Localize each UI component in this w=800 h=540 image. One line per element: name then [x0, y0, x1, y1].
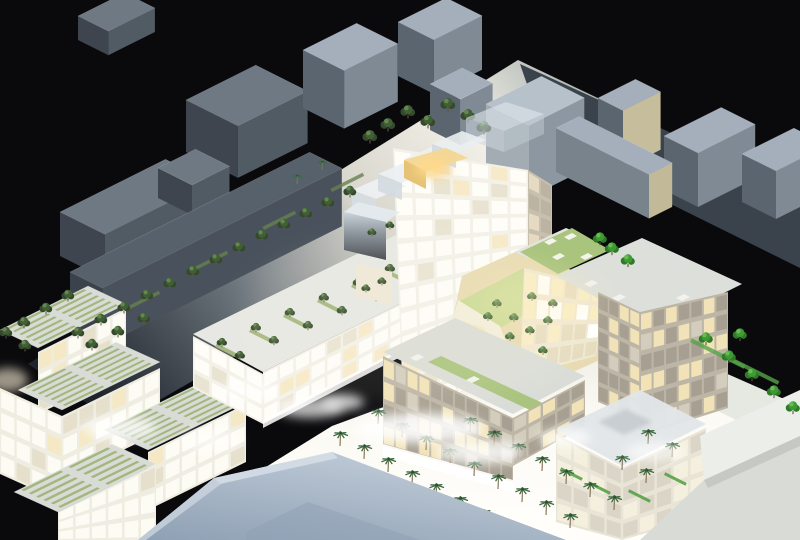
window-cell	[666, 346, 677, 364]
window-cell	[491, 184, 507, 198]
street-light-glow	[625, 442, 685, 462]
tree-highlight	[213, 254, 217, 258]
window-cell	[454, 200, 470, 215]
tree-highlight	[167, 278, 171, 282]
window-cell	[716, 333, 727, 351]
palm-crown	[565, 470, 568, 473]
palm-crown	[613, 496, 616, 499]
tree-highlight	[75, 327, 79, 331]
tree-highlight	[43, 303, 47, 307]
street-light-glow	[320, 394, 364, 410]
window-cell	[491, 166, 507, 181]
palm-crown	[497, 475, 500, 478]
window-cell	[435, 219, 451, 235]
street-light-glow	[436, 440, 524, 464]
tree-highlight	[370, 229, 373, 232]
tree-highlight	[702, 333, 706, 337]
palm-crown	[363, 445, 366, 448]
tree-highlight	[347, 186, 351, 190]
tree-highlight	[259, 230, 263, 234]
tree-highlight	[98, 314, 102, 318]
window-cell	[472, 163, 488, 179]
courtyard-glow	[480, 272, 600, 328]
palm-crown	[321, 161, 323, 163]
tree-highlight	[770, 386, 774, 390]
window-cell	[453, 180, 469, 196]
tree-highlight	[22, 340, 26, 344]
tree-highlight	[65, 290, 69, 294]
tree-highlight	[303, 208, 307, 212]
street-light-glow	[180, 430, 240, 450]
window-cell	[510, 185, 526, 198]
tree-highlight	[281, 219, 285, 223]
window-cell	[416, 220, 432, 237]
street-light-glow	[356, 413, 484, 443]
tree-highlight	[444, 99, 449, 104]
street-light-glow	[180, 430, 240, 450]
tree-highlight	[388, 222, 391, 225]
window-cell	[511, 233, 527, 247]
tree-highlight	[325, 197, 329, 201]
window-cell	[679, 303, 690, 321]
window-cell	[679, 363, 690, 381]
window-cell	[416, 198, 432, 215]
window-cell	[641, 312, 652, 330]
street-light-glow	[222, 381, 278, 399]
palm-crown	[459, 497, 462, 500]
palm-crown	[647, 430, 650, 433]
window-cell	[92, 525, 106, 538]
palm-crown	[545, 501, 548, 504]
window-cell	[679, 383, 690, 401]
window-cell	[511, 202, 527, 214]
window-cell	[492, 218, 508, 232]
window-cell	[434, 178, 451, 195]
courtyard-glow	[480, 272, 600, 328]
tree-highlight	[115, 326, 119, 330]
tree-highlight	[237, 351, 240, 354]
window-cell	[716, 295, 727, 312]
window-cell	[704, 297, 715, 314]
palm-crown	[339, 432, 342, 435]
palm-crown	[296, 175, 298, 177]
penthouse-warm-glow	[415, 158, 451, 178]
window-cell	[472, 182, 488, 197]
window-cell	[587, 324, 600, 338]
window-cell	[108, 523, 122, 538]
window-cell	[473, 200, 489, 214]
window-cell	[125, 520, 139, 537]
window-cell	[666, 306, 677, 324]
window-cell	[641, 373, 652, 392]
tree-highlight	[464, 110, 469, 115]
window-cell	[691, 320, 702, 338]
tree-highlight	[219, 338, 222, 341]
tree-highlight	[736, 329, 740, 333]
tree-highlight	[404, 106, 409, 111]
palm-crown	[569, 514, 572, 517]
window-cell	[716, 314, 727, 331]
tree-highlight	[608, 243, 612, 247]
tree-highlight	[424, 116, 429, 121]
tree-highlight	[121, 302, 125, 306]
scene-layers	[0, 0, 800, 540]
architectural-model-photo	[0, 0, 800, 540]
palm-crown	[541, 457, 544, 460]
street-light-glow	[320, 394, 364, 410]
tree-highlight	[366, 131, 371, 136]
window-cell	[654, 370, 665, 388]
window-cell	[666, 387, 677, 406]
palm-crown	[621, 456, 624, 459]
window-cell	[704, 356, 715, 374]
window-cell	[691, 300, 702, 318]
palm-crown	[387, 458, 390, 461]
model-photo-stage	[0, 0, 800, 540]
window-cell	[473, 218, 489, 233]
tree-highlight	[624, 255, 628, 259]
tree-highlight	[596, 233, 600, 237]
street-light-glow	[84, 417, 156, 439]
window-cell	[435, 199, 451, 215]
street-light-glow	[539, 429, 591, 447]
palm-crown	[645, 469, 648, 472]
tree-highlight	[89, 339, 93, 343]
tree-highlight	[141, 313, 145, 317]
window-cell	[654, 350, 665, 368]
palm-crown	[435, 484, 438, 487]
tree-highlight	[725, 351, 729, 355]
window-cell	[654, 329, 665, 347]
window-cell	[679, 343, 690, 361]
penthouse-warm-glow	[415, 158, 451, 178]
window-cell	[641, 332, 652, 350]
window-cell	[641, 353, 652, 371]
window-cell	[666, 366, 677, 384]
tree-highlight	[3, 327, 7, 331]
palm-crown	[589, 483, 592, 486]
window-cell	[679, 323, 690, 341]
tree-highlight	[236, 242, 240, 246]
tree-highlight	[21, 317, 25, 321]
tree-highlight	[789, 402, 793, 406]
tree-highlight	[190, 266, 194, 270]
street-light-glow	[222, 381, 278, 399]
window-cell	[704, 317, 715, 335]
palm-crown	[493, 431, 496, 434]
window-cell	[511, 217, 527, 230]
palm-crown	[377, 410, 380, 413]
window-cell	[654, 309, 665, 327]
tree-highlight	[748, 369, 752, 373]
tree-highlight	[384, 119, 389, 124]
palm-crown	[411, 471, 414, 474]
tree-highlight	[144, 290, 148, 294]
street-light-glow	[625, 442, 685, 462]
street-light-glow	[436, 440, 524, 464]
street-light-glow	[356, 413, 484, 443]
street-light-glow	[539, 429, 591, 447]
street-light-glow	[84, 417, 156, 439]
window-cell	[691, 360, 702, 378]
window-cell	[666, 326, 677, 344]
window-cell	[454, 219, 470, 234]
window-cell	[492, 201, 508, 214]
window-cell	[691, 379, 702, 397]
palm-crown	[521, 488, 524, 491]
